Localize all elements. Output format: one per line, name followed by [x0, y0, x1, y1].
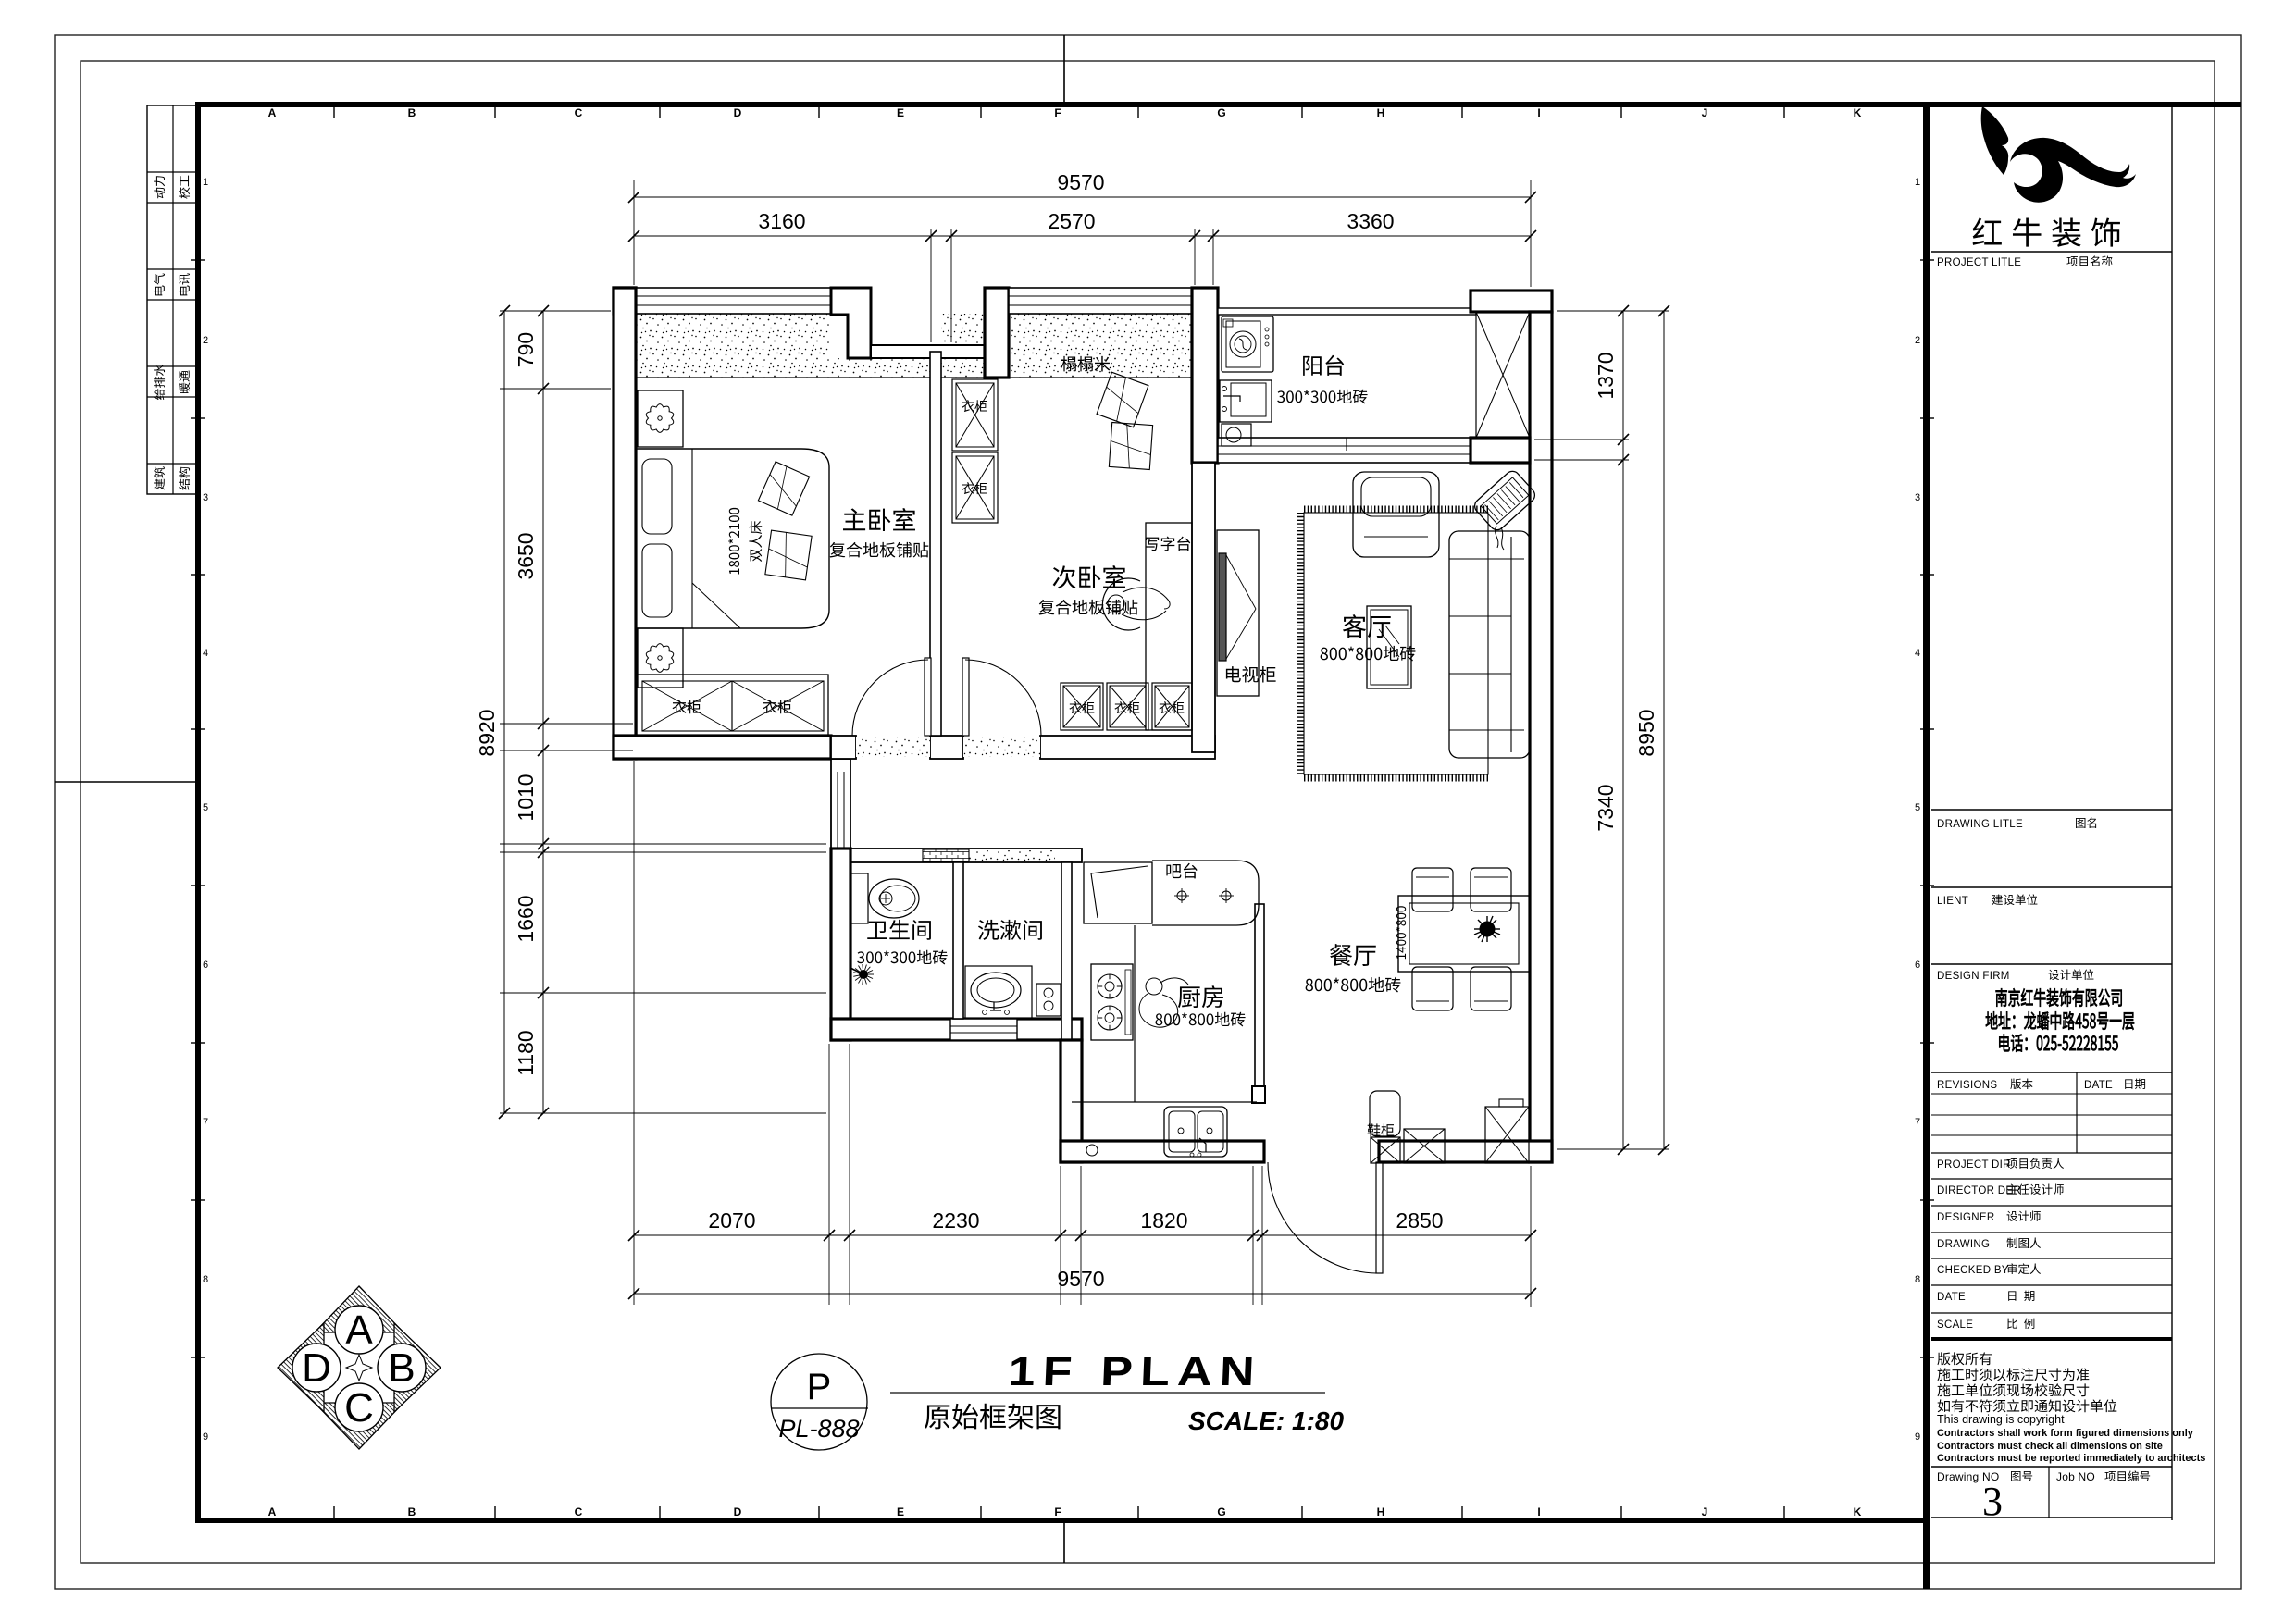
svg-text:1F PLAN: 1F PLAN — [1008, 1349, 1263, 1394]
svg-text:8950: 8950 — [1634, 709, 1658, 756]
svg-text:C: C — [575, 1505, 583, 1518]
svg-text:1180: 1180 — [514, 1030, 538, 1075]
svg-text:J: J — [1702, 1505, 1708, 1518]
svg-text:H: H — [1377, 1505, 1385, 1518]
svg-text:Job NO: Job NO — [2056, 1470, 2095, 1483]
svg-text:6: 6 — [1915, 960, 1920, 971]
svg-text:4: 4 — [1915, 648, 1920, 659]
svg-text:Contractors must be reported i: Contractors must be reported immediately… — [1937, 1453, 2205, 1464]
svg-text:B: B — [388, 1345, 415, 1391]
svg-text:9570: 9570 — [1057, 1267, 1104, 1291]
svg-text:2: 2 — [1915, 335, 1920, 346]
svg-text:LIENT: LIENT — [1937, 896, 1968, 907]
svg-text:2: 2 — [203, 335, 208, 346]
svg-text:7: 7 — [1915, 1117, 1920, 1128]
svg-text:4: 4 — [203, 648, 208, 659]
svg-text:B: B — [408, 106, 416, 119]
svg-text:1: 1 — [1915, 177, 1920, 188]
svg-text:I: I — [1537, 1505, 1540, 1518]
svg-text:CHECKED BY: CHECKED BY — [1937, 1265, 2009, 1276]
svg-text:DESIGNER: DESIGNER — [1937, 1212, 1994, 1223]
svg-text:2230: 2230 — [932, 1208, 979, 1233]
svg-text:3: 3 — [203, 492, 208, 503]
svg-text:DESIGN FIRM: DESIGN FIRM — [1937, 971, 2010, 982]
svg-text:Contractors must check all dim: Contractors must check all dimensions on… — [1937, 1441, 2163, 1452]
svg-text:DRAWING: DRAWING — [1937, 1239, 1990, 1250]
svg-text:D: D — [302, 1345, 331, 1391]
svg-text:D: D — [734, 1505, 742, 1518]
svg-text:A: A — [345, 1307, 373, 1353]
svg-text:DATE: DATE — [2084, 1080, 2113, 1091]
svg-text:1820: 1820 — [1140, 1208, 1187, 1233]
svg-text:I: I — [1537, 106, 1540, 119]
svg-text:H: H — [1377, 106, 1385, 119]
svg-text:5: 5 — [1915, 802, 1920, 813]
svg-text:7: 7 — [203, 1117, 208, 1128]
svg-text:B: B — [408, 1505, 416, 1518]
svg-text:SCALE: SCALE — [1937, 1319, 1973, 1331]
svg-text:G: G — [1217, 106, 1225, 119]
svg-text:J: J — [1702, 106, 1708, 119]
svg-text:A: A — [268, 106, 277, 119]
svg-text:PROJECT LITLE: PROJECT LITLE — [1937, 257, 2021, 268]
svg-text:790: 790 — [514, 332, 538, 367]
svg-text:SCALE: 1:80: SCALE: 1:80 — [1188, 1406, 1344, 1435]
svg-text:K: K — [1854, 106, 1862, 119]
svg-text:1010: 1010 — [514, 774, 538, 821]
svg-text:3650: 3650 — [514, 532, 538, 579]
svg-text:8: 8 — [203, 1274, 208, 1285]
svg-text:K: K — [1854, 1505, 1862, 1518]
svg-text:8920: 8920 — [475, 709, 499, 756]
svg-text:2570: 2570 — [1048, 209, 1095, 233]
svg-text:1370: 1370 — [1594, 352, 1618, 399]
svg-text:8: 8 — [1915, 1274, 1920, 1285]
svg-text:F: F — [1054, 106, 1061, 119]
svg-text:C: C — [344, 1385, 374, 1431]
svg-text:7340: 7340 — [1594, 784, 1618, 831]
svg-text:2850: 2850 — [1396, 1208, 1443, 1233]
svg-text:REVISIONS: REVISIONS — [1937, 1080, 1997, 1091]
svg-text:G: G — [1217, 1505, 1225, 1518]
svg-text:DRAWING LITLE: DRAWING LITLE — [1937, 819, 2023, 830]
svg-text:E: E — [897, 1505, 904, 1518]
svg-text:5: 5 — [203, 802, 208, 813]
svg-text:3160: 3160 — [758, 209, 805, 233]
svg-text:D: D — [734, 106, 742, 119]
svg-text:E: E — [897, 106, 904, 119]
svg-text:PROJECT DIR: PROJECT DIR — [1937, 1159, 2011, 1171]
svg-text:3: 3 — [1915, 492, 1920, 503]
svg-text:DATE: DATE — [1937, 1292, 1966, 1303]
svg-text:1660: 1660 — [514, 895, 538, 942]
svg-text:This drawing is copyright: This drawing is copyright — [1937, 1413, 2065, 1426]
svg-text:C: C — [575, 106, 583, 119]
svg-text:9570: 9570 — [1057, 170, 1104, 194]
svg-text:9: 9 — [1915, 1431, 1920, 1443]
svg-text:P: P — [807, 1367, 832, 1407]
svg-text:A: A — [268, 1505, 277, 1518]
svg-text:Contractors shall work form fi: Contractors shall work form figured dime… — [1937, 1428, 2194, 1439]
svg-text:2070: 2070 — [708, 1208, 755, 1233]
svg-text:F: F — [1054, 1505, 1061, 1518]
svg-text:1: 1 — [203, 177, 208, 188]
svg-text:6: 6 — [203, 960, 208, 971]
svg-text:3360: 3360 — [1347, 209, 1394, 233]
svg-text:PL-888: PL-888 — [778, 1415, 859, 1443]
svg-text:9: 9 — [203, 1431, 208, 1443]
svg-text:3: 3 — [1982, 1479, 2003, 1524]
